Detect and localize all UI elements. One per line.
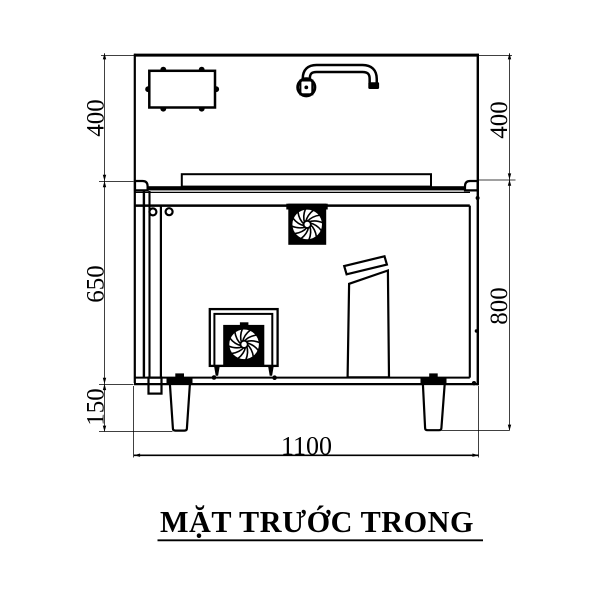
svg-text:650: 650 [83, 265, 110, 303]
svg-text:150: 150 [83, 388, 110, 426]
svg-text:MẶT TRƯỚC TRONG: MẶT TRƯỚC TRONG [160, 505, 474, 539]
svg-text:800: 800 [486, 287, 513, 325]
svg-text:400: 400 [83, 99, 110, 137]
svg-text:1100: 1100 [281, 431, 332, 460]
svg-text:400: 400 [486, 101, 513, 139]
